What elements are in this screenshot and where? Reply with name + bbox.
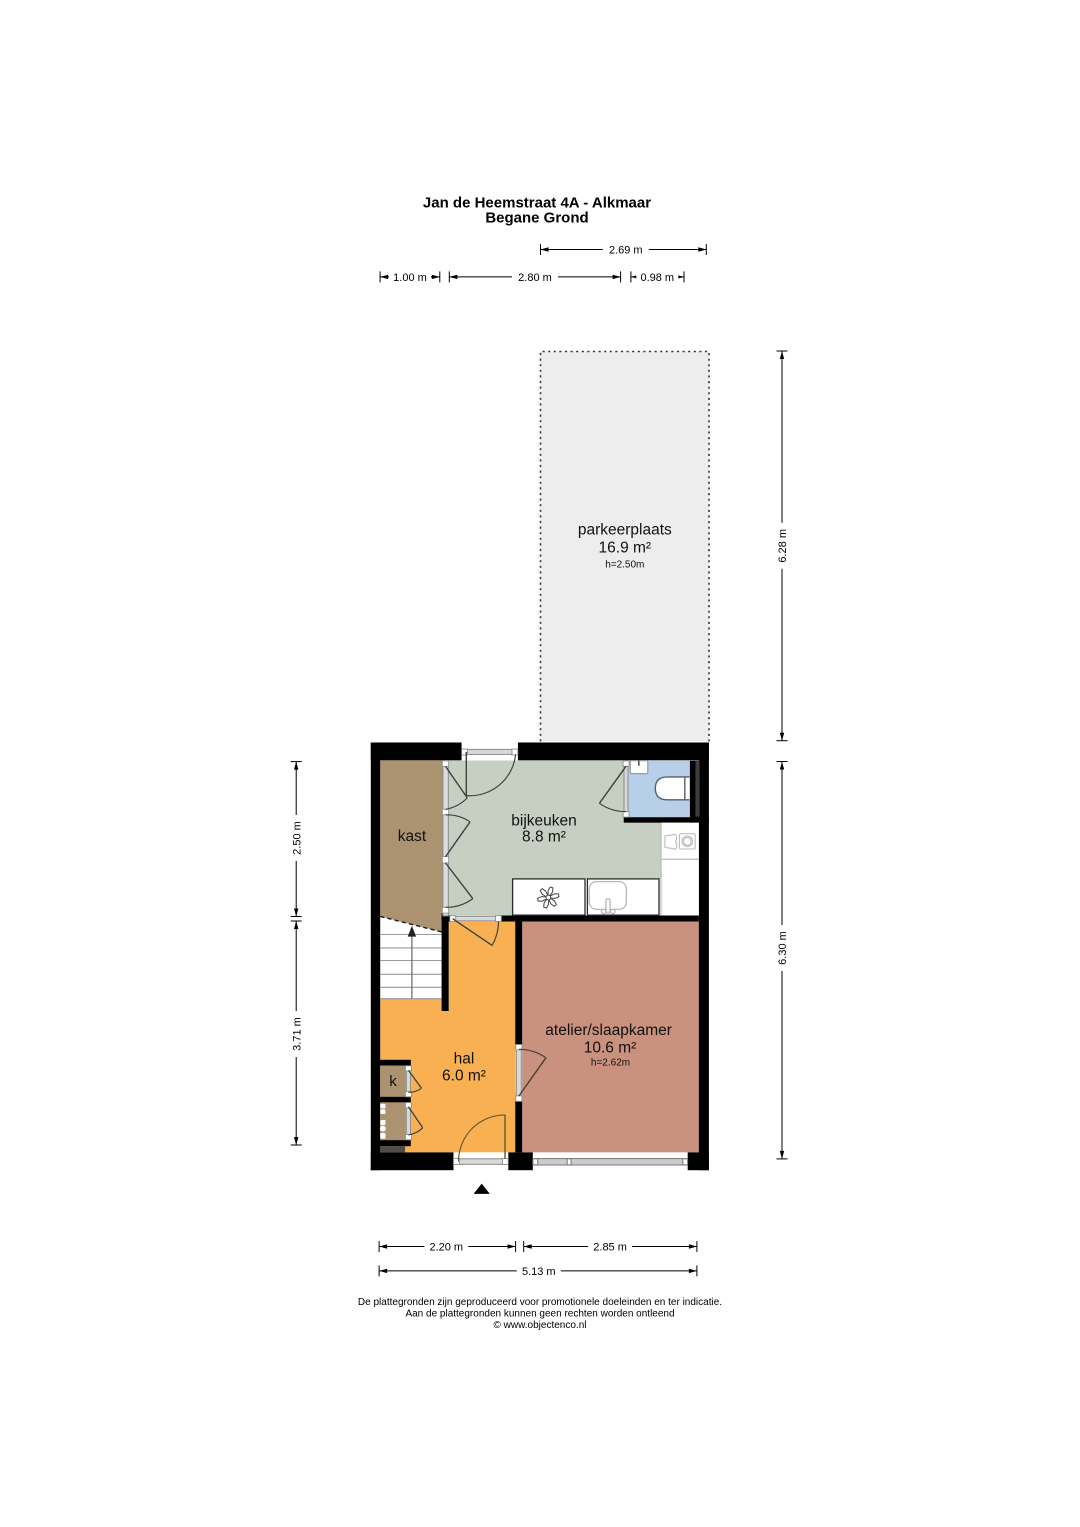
svg-text:6.30 m: 6.30 m — [777, 931, 789, 965]
svg-text:2.50 m: 2.50 m — [291, 821, 303, 855]
svg-text:atelier/slaapkamer: atelier/slaapkamer — [545, 1022, 672, 1039]
svg-text:5.13 m: 5.13 m — [522, 1266, 556, 1278]
svg-text:© www.objectenco.nl: © www.objectenco.nl — [494, 1320, 587, 1331]
svg-text:hal: hal — [454, 1051, 475, 1068]
svg-text:h=2.62m: h=2.62m — [591, 1058, 630, 1069]
svg-text:2.80 m: 2.80 m — [518, 272, 552, 284]
svg-text:8.8 m²: 8.8 m² — [522, 829, 566, 846]
svg-text:2.69 m: 2.69 m — [609, 245, 643, 257]
svg-text:h=2.50m: h=2.50m — [605, 560, 644, 571]
svg-text:parkeerplaats: parkeerplaats — [578, 522, 672, 539]
svg-text:0.98 m: 0.98 m — [640, 272, 674, 284]
svg-text:De plattegronden zijn geproduc: De plattegronden zijn geproduceerd voor … — [358, 1297, 722, 1308]
svg-text:6.28 m: 6.28 m — [777, 529, 789, 563]
svg-text:2.85 m: 2.85 m — [593, 1242, 627, 1254]
svg-text:6.0 m²: 6.0 m² — [442, 1068, 486, 1085]
svg-text:2.20 m: 2.20 m — [429, 1242, 463, 1254]
svg-text:1.00 m: 1.00 m — [393, 272, 427, 284]
svg-text:16.9 m²: 16.9 m² — [599, 540, 652, 557]
svg-text:10.6 m²: 10.6 m² — [584, 1040, 637, 1057]
svg-text:Aan de plattegronden kunnen ge: Aan de plattegronden kunnen geen rechten… — [405, 1309, 674, 1320]
svg-text:Begane Grond: Begane Grond — [485, 210, 588, 227]
svg-text:bijkeuken: bijkeuken — [511, 813, 577, 830]
svg-text:kast: kast — [398, 828, 427, 845]
svg-text:k: k — [389, 1073, 397, 1090]
svg-text:3.71 m: 3.71 m — [291, 1017, 303, 1051]
